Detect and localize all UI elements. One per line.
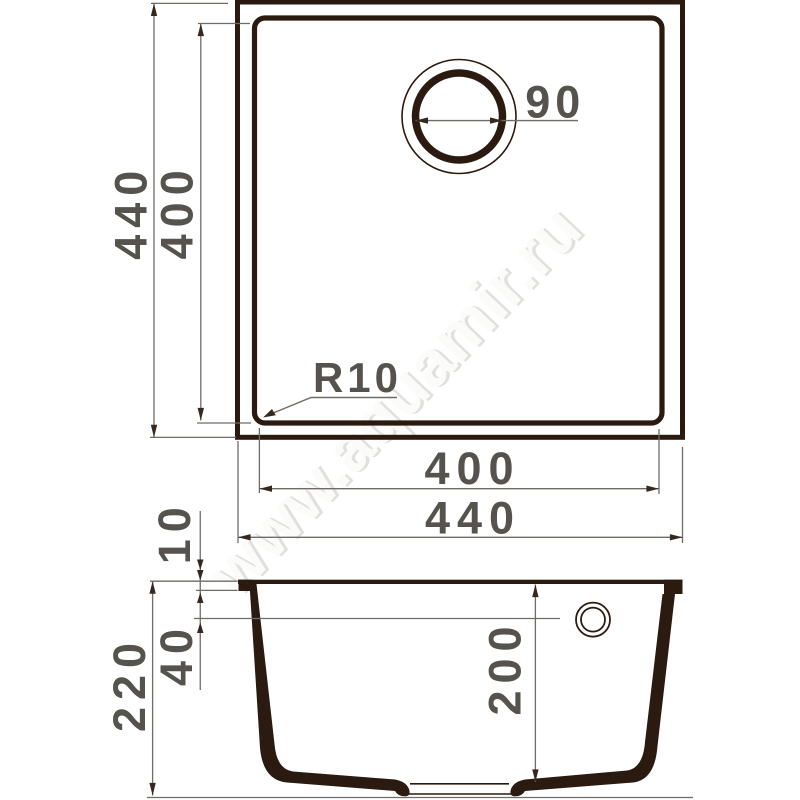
svg-text:200: 200 bbox=[480, 619, 531, 715]
svg-text:400: 400 bbox=[152, 163, 203, 259]
svg-text:90: 90 bbox=[525, 76, 585, 127]
svg-text:220: 220 bbox=[104, 636, 155, 732]
svg-text:40: 40 bbox=[151, 622, 202, 686]
svg-text:440: 440 bbox=[106, 164, 157, 260]
svg-text:R10: R10 bbox=[313, 354, 402, 401]
svg-text:400: 400 bbox=[424, 443, 520, 494]
svg-text:10: 10 bbox=[149, 500, 200, 564]
svg-text:440: 440 bbox=[425, 492, 521, 543]
